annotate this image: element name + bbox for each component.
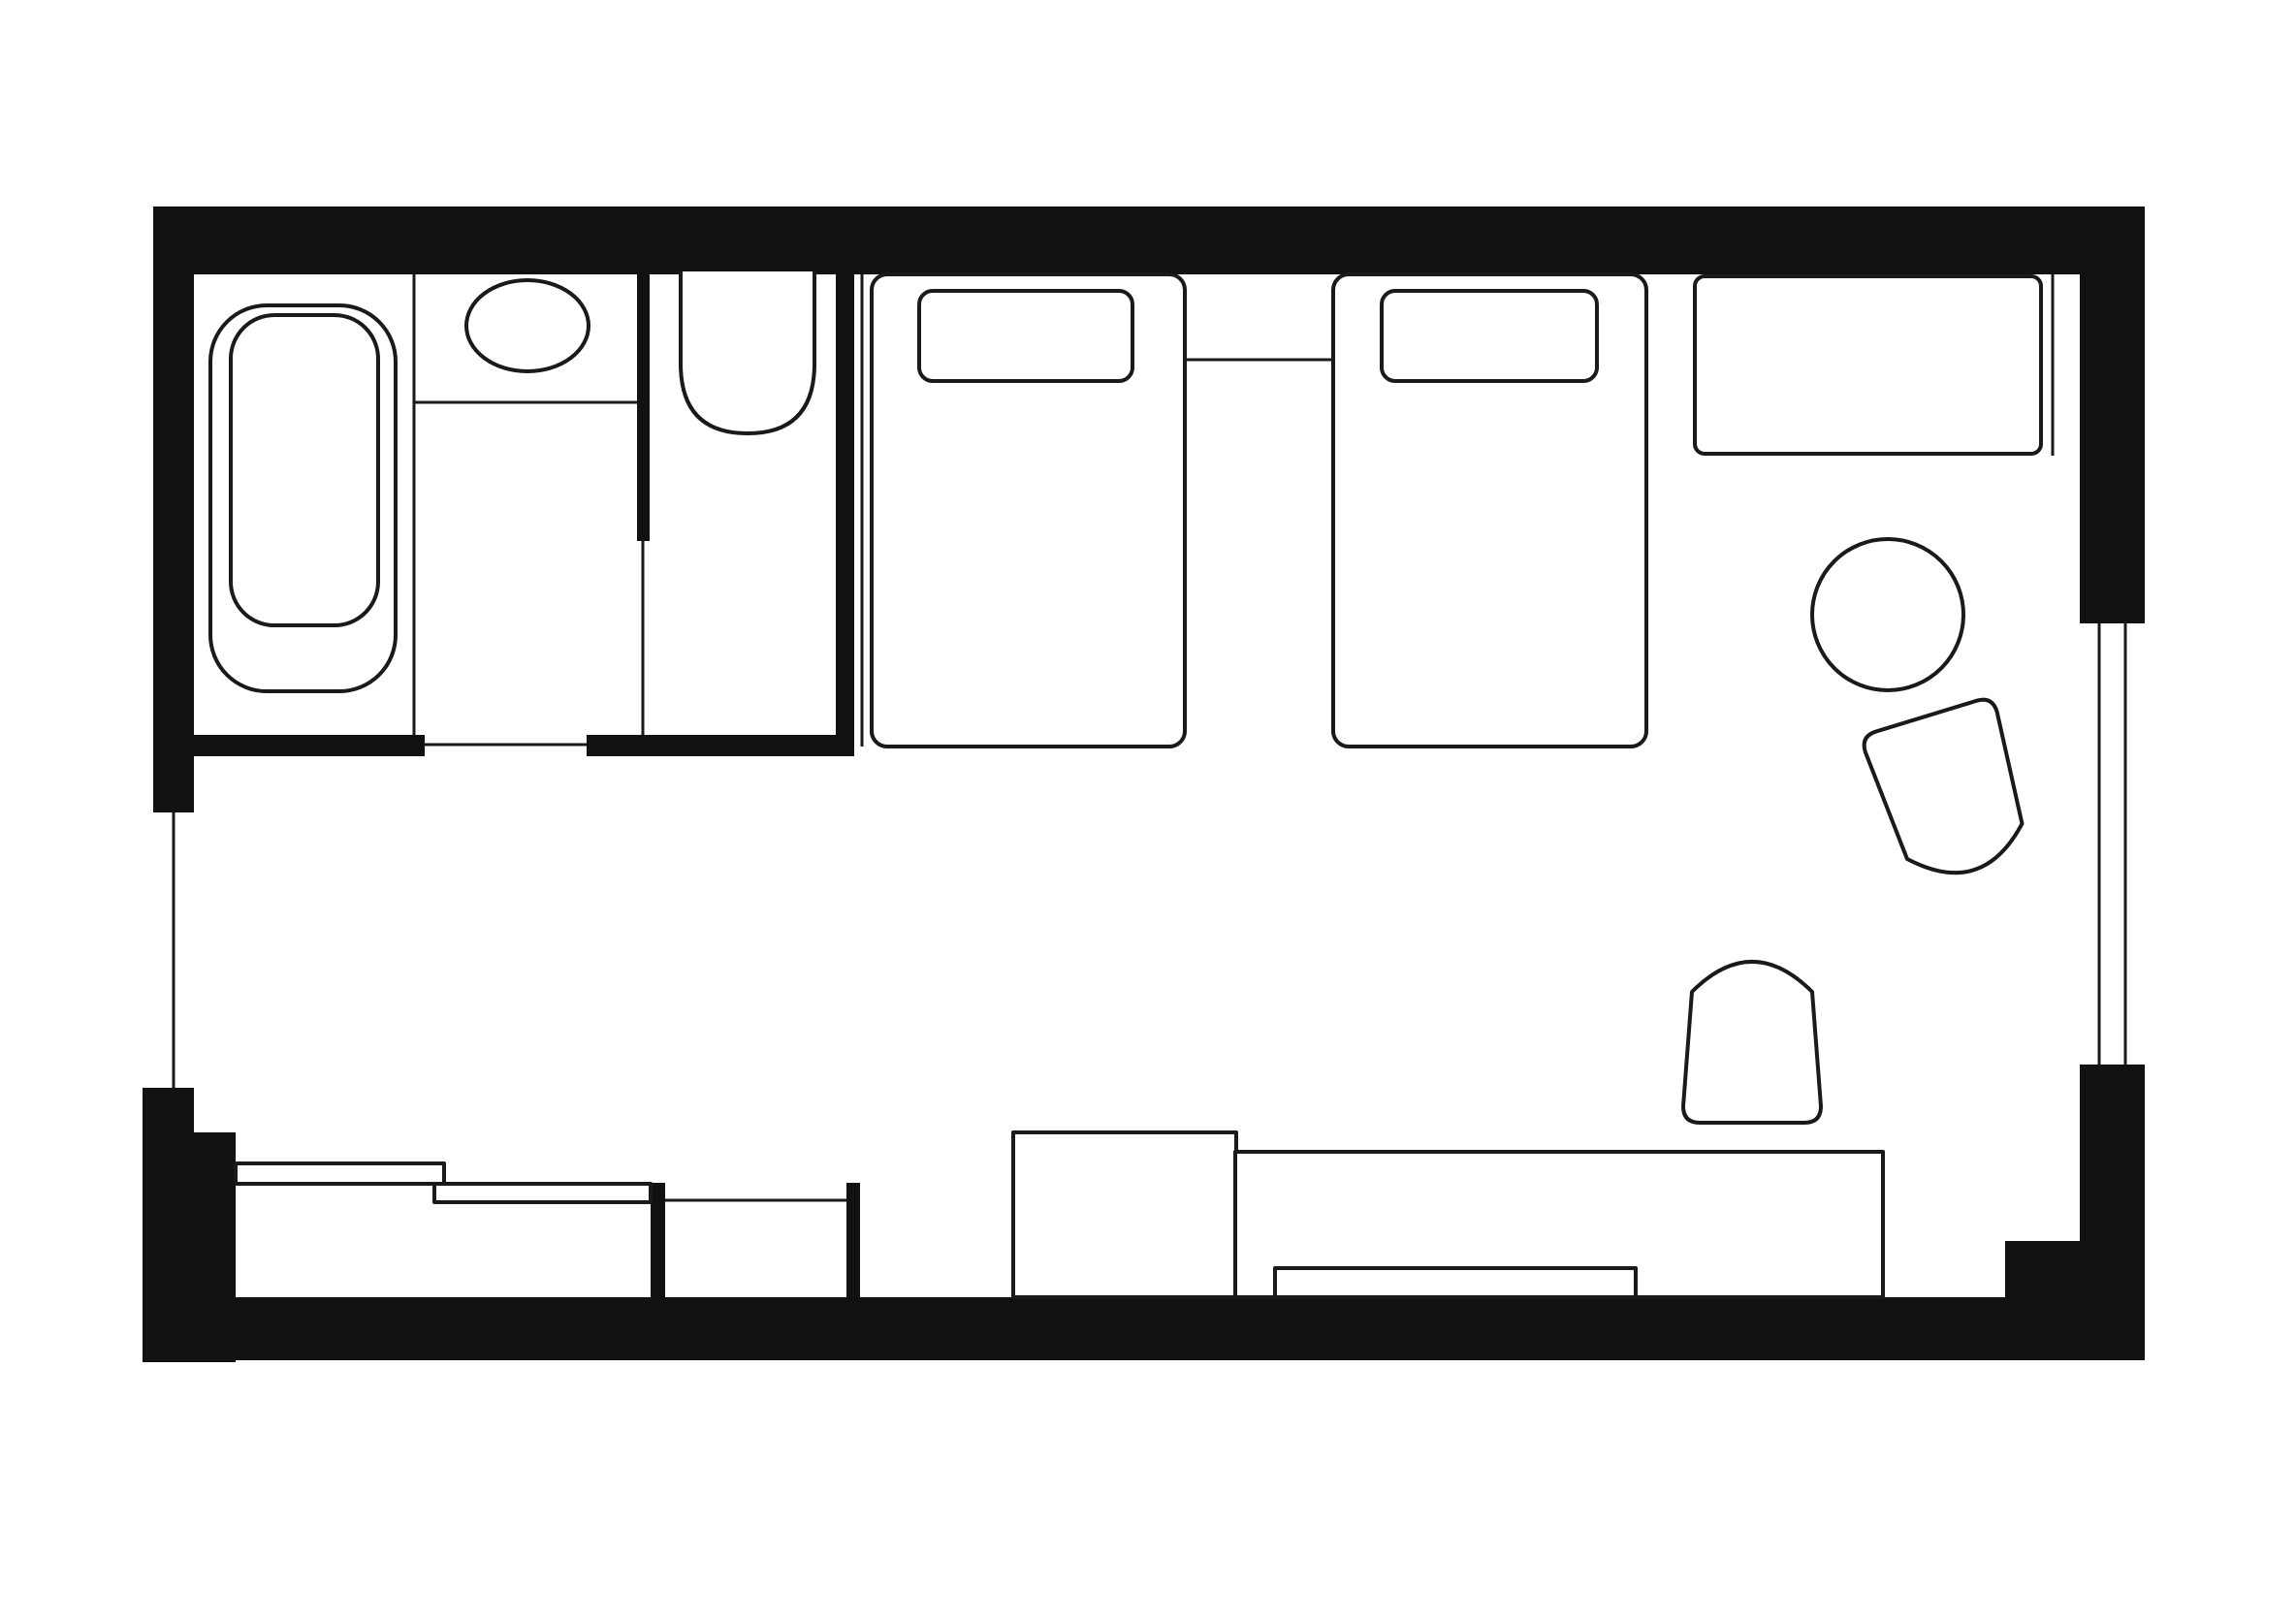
toilet-divider-wall: [637, 274, 650, 541]
bathroom-south-wall-left: [194, 735, 425, 756]
storage-box: [1013, 1132, 1236, 1297]
right-exterior-wall-upper: [2080, 207, 2145, 623]
desk-cabinet: [1695, 276, 2041, 454]
bathroom-south-wall-right: [587, 735, 854, 756]
round-table: [1812, 539, 1963, 690]
toilet-bowl: [681, 271, 814, 433]
bottom-exterior-wall: [143, 1297, 2145, 1360]
floorplan-page: [0, 0, 2296, 1622]
closet-shelf-upper: [236, 1163, 444, 1184]
closet-post-left: [651, 1183, 665, 1297]
right-corner-wall-step: [2005, 1241, 2080, 1297]
sink-basin: [466, 280, 589, 371]
right-exterior-wall-lower: [2080, 1065, 2145, 1360]
bathroom-bedroom-wall: [836, 274, 854, 756]
closet-post-right: [846, 1183, 860, 1297]
closet-shelf-lower: [434, 1184, 651, 1202]
top-exterior-wall: [153, 207, 2145, 274]
desk-chair: [1683, 962, 1821, 1123]
floorplan-canvas: [0, 0, 2296, 1622]
pillow-1: [919, 291, 1132, 381]
left-exterior-wall: [153, 207, 194, 812]
pillow-2: [1382, 291, 1597, 381]
bathtub-inner-rim: [231, 315, 378, 625]
console-inset-panel: [1275, 1268, 1636, 1297]
